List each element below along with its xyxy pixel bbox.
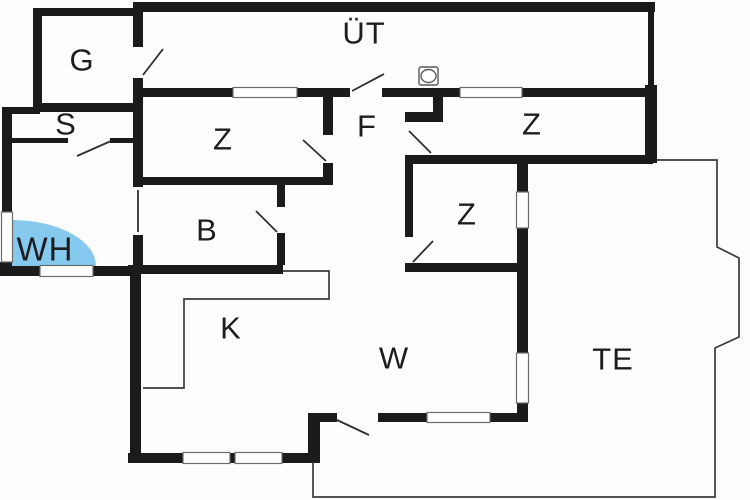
room-label-te: TE — [592, 344, 634, 375]
door-swing — [77, 141, 111, 156]
wall — [323, 163, 333, 185]
wall — [382, 88, 460, 97]
wall — [230, 453, 235, 463]
door-swing — [413, 241, 433, 262]
floor-plan: ÜT G S WH Z F Z Z B K W TE — [0, 0, 750, 500]
wall — [282, 453, 320, 463]
wall — [645, 85, 657, 163]
wall — [133, 177, 331, 185]
washer-drum — [421, 70, 436, 83]
wall — [33, 8, 42, 112]
wall — [133, 88, 233, 97]
window — [427, 413, 490, 423]
window — [233, 88, 297, 98]
room-label-w: W — [379, 343, 409, 374]
wall — [133, 235, 143, 266]
wall — [2, 266, 40, 276]
wall — [128, 265, 283, 274]
door-swing — [303, 140, 326, 161]
window — [460, 88, 522, 98]
wall — [522, 88, 653, 97]
wall — [405, 155, 653, 164]
room-label-s: S — [55, 109, 77, 140]
window — [235, 453, 282, 464]
window — [517, 353, 529, 403]
window — [517, 192, 529, 228]
wall — [133, 78, 143, 187]
wall — [378, 413, 427, 422]
wall — [133, 2, 655, 12]
wall — [405, 164, 413, 237]
windows — [2, 88, 529, 464]
wall — [33, 8, 143, 16]
floor-plan-drawing — [0, 0, 750, 500]
wall — [277, 233, 285, 265]
room-label-b: B — [196, 215, 218, 246]
wall — [110, 138, 135, 143]
wall — [648, 2, 654, 90]
wall — [517, 155, 528, 192]
room-label-ut: ÜT — [342, 18, 385, 49]
room-label-g: G — [69, 45, 94, 76]
wall — [133, 2, 143, 47]
door-swing — [256, 211, 277, 232]
window — [2, 212, 13, 262]
wall — [130, 272, 141, 463]
wall — [490, 413, 528, 422]
wall — [405, 263, 520, 272]
room-label-k: K — [220, 313, 242, 344]
washer-icon — [419, 67, 438, 85]
door-swing — [337, 420, 369, 435]
room-label-z-left: Z — [213, 124, 233, 155]
wall — [2, 107, 12, 212]
window — [183, 453, 230, 464]
wall — [277, 185, 285, 207]
door-swing — [143, 49, 163, 75]
walls — [0, 2, 657, 463]
wall — [405, 112, 443, 122]
wall — [33, 103, 143, 112]
door-swing — [352, 74, 384, 91]
room-label-z-top-right: Z — [522, 109, 542, 140]
wall — [517, 228, 528, 353]
door-swing — [409, 131, 431, 153]
room-label-f: F — [357, 111, 377, 142]
wall — [323, 92, 333, 135]
room-label-wh: WH — [17, 233, 74, 266]
room-label-z-middle: Z — [457, 199, 477, 230]
